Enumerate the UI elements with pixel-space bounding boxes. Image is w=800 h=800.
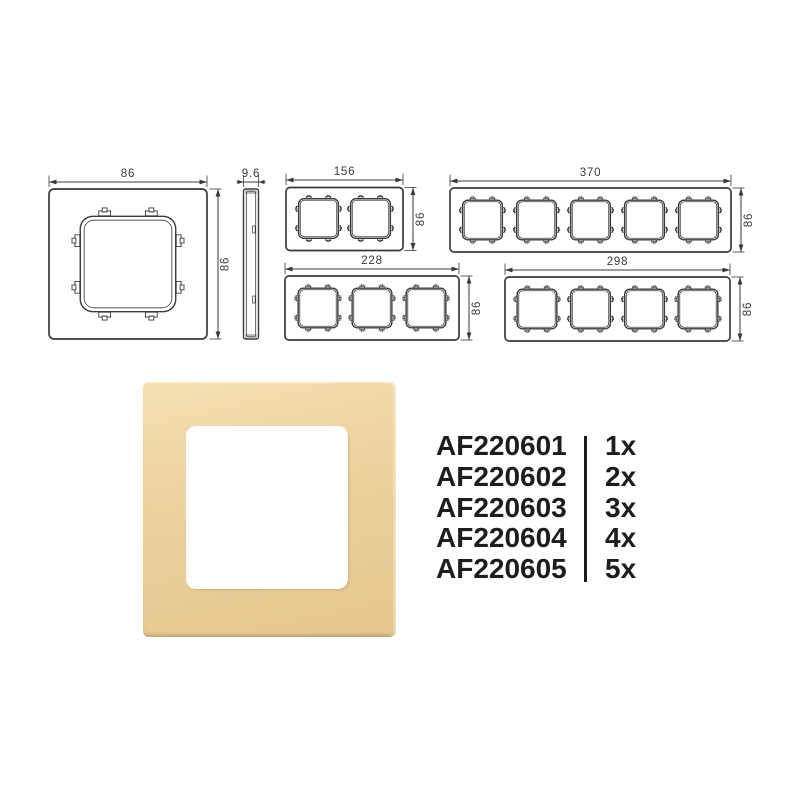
product-code: AF220603 bbox=[436, 492, 584, 524]
module-opening bbox=[403, 285, 450, 332]
dim-depth: 9.6 bbox=[242, 168, 260, 180]
list-divider bbox=[584, 436, 587, 582]
product-qty: 3x bbox=[584, 492, 636, 524]
dim-width-2g: 156 bbox=[334, 166, 356, 178]
list-item: AF220604 4x bbox=[436, 523, 636, 554]
module-opening bbox=[675, 286, 722, 333]
module-opening bbox=[295, 285, 342, 332]
front-view-5-gang: 370 86 bbox=[450, 167, 755, 252]
product-code: AF220605 bbox=[436, 553, 584, 585]
front-view-1-gang: 86 86 bbox=[49, 168, 232, 339]
front-view-4-gang: 298 86 bbox=[505, 256, 754, 341]
module-opening bbox=[621, 197, 668, 244]
module-opening bbox=[675, 197, 722, 244]
product-qty: 2x bbox=[584, 461, 636, 493]
dim-width-3g: 228 bbox=[361, 255, 383, 267]
product-photo-gold-frame bbox=[143, 382, 396, 637]
front-view-2-gang: 156 86 bbox=[286, 166, 427, 251]
dim-height-3g: 86 bbox=[471, 301, 483, 315]
dim-height-2g: 86 bbox=[415, 212, 427, 226]
product-sheet: 86 86 9.6 bbox=[0, 0, 800, 800]
module-opening bbox=[349, 285, 396, 332]
list-item: AF220603 3x bbox=[436, 492, 636, 523]
dim-width-1g: 86 bbox=[121, 168, 135, 180]
technical-drawings: 86 86 9.6 bbox=[0, 0, 800, 370]
list-item: AF220601 1x bbox=[436, 431, 636, 462]
list-item: AF220605 5x bbox=[436, 554, 636, 585]
product-qty: 1x bbox=[584, 430, 636, 462]
side-view: 9.6 bbox=[237, 168, 266, 339]
module-opening bbox=[621, 286, 668, 333]
product-code: AF220604 bbox=[436, 522, 584, 554]
product-code: AF220601 bbox=[436, 430, 584, 462]
product-qty: 5x bbox=[584, 553, 636, 585]
dim-height-4g: 86 bbox=[742, 302, 754, 316]
front-view-3-gang: 228 86 bbox=[285, 255, 483, 340]
product-code: AF220602 bbox=[436, 461, 584, 493]
list-item: AF220602 2x bbox=[436, 462, 636, 493]
module-opening bbox=[567, 197, 614, 244]
frame-opening-cutout bbox=[186, 426, 348, 589]
product-code-list: AF220601 1x AF220602 2x AF220603 3x AF22… bbox=[436, 431, 636, 584]
module-opening bbox=[72, 208, 184, 320]
module-opening bbox=[567, 286, 614, 333]
module-opening bbox=[514, 286, 561, 333]
profile-outline bbox=[244, 189, 259, 339]
module-opening bbox=[347, 195, 394, 242]
dim-height-1g: 86 bbox=[220, 257, 232, 271]
product-qty: 4x bbox=[584, 522, 636, 554]
module-opening bbox=[459, 197, 506, 244]
module-opening bbox=[513, 197, 560, 244]
module-opening bbox=[295, 195, 342, 242]
dim-width-4g: 298 bbox=[607, 256, 629, 268]
dim-width-5g: 370 bbox=[580, 167, 602, 179]
dim-height-5g: 86 bbox=[743, 213, 755, 227]
